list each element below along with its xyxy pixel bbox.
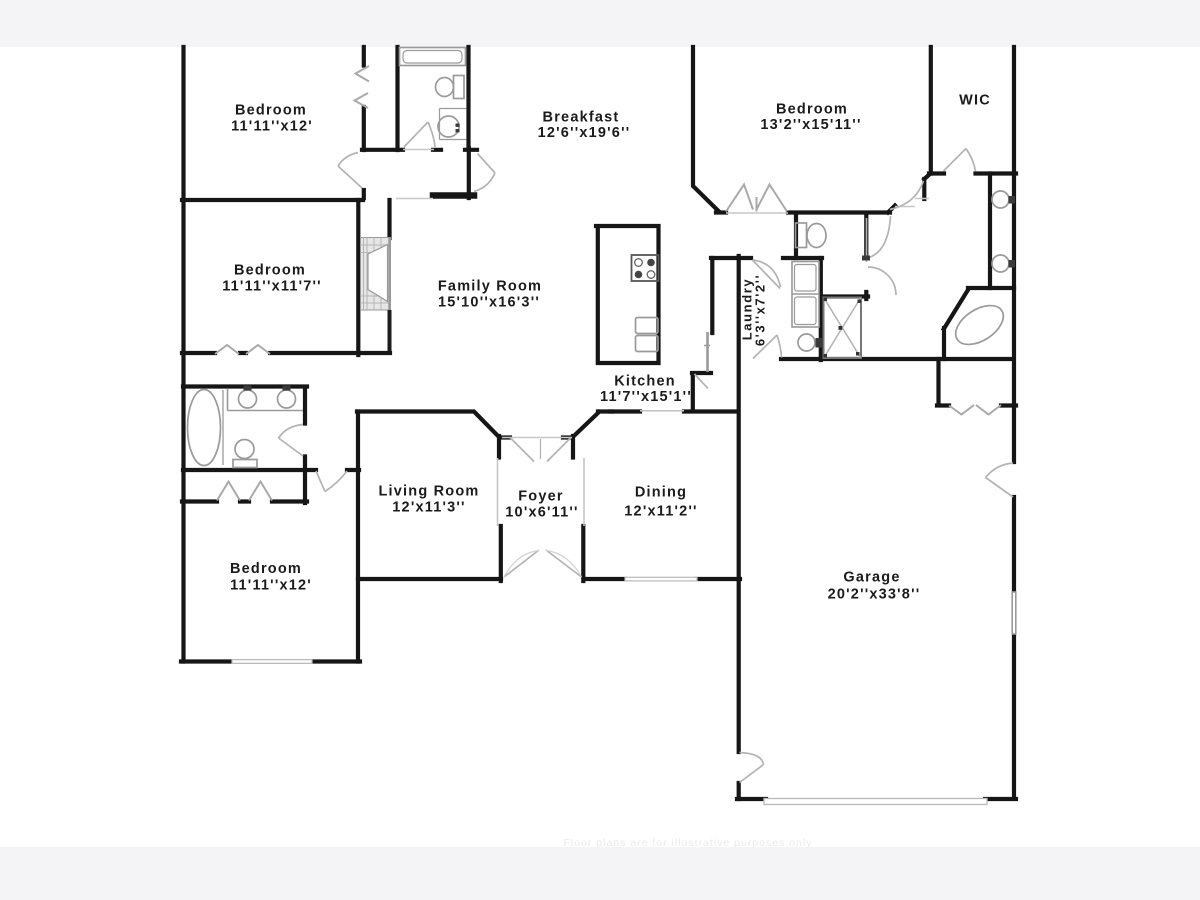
svg-text:Dining: Dining (635, 485, 687, 501)
svg-text:Bedroom: Bedroom (776, 102, 848, 118)
svg-text:12'x11'2'': 12'x11'2'' (624, 504, 697, 520)
svg-text:11'11''x12': 11'11''x12' (230, 578, 312, 594)
svg-text:6'3''x7'2'': 6'3''x7'2'' (753, 274, 768, 346)
svg-text:11'11''x11'7'': 11'11''x11'7'' (222, 279, 322, 295)
svg-text:10'x6'11'': 10'x6'11'' (505, 505, 578, 521)
svg-text:Kitchen: Kitchen (614, 374, 676, 390)
svg-text:Family Room: Family Room (438, 279, 542, 295)
svg-text:WIC: WIC (959, 93, 991, 109)
svg-text:15'10''x16'3'': 15'10''x16'3'' (438, 295, 540, 311)
svg-text:Breakfast: Breakfast (543, 110, 620, 126)
svg-text:Foyer: Foyer (518, 489, 564, 505)
svg-text:11'7''x15'1'': 11'7''x15'1'' (600, 389, 692, 405)
svg-text:Bedroom: Bedroom (230, 561, 302, 577)
svg-text:13'2''x15'11'': 13'2''x15'11'' (760, 117, 861, 133)
svg-text:12'x11'3'': 12'x11'3'' (392, 500, 465, 516)
svg-text:Living Room: Living Room (378, 484, 479, 500)
svg-text:11'11''x12': 11'11''x12' (231, 119, 313, 135)
svg-text:Floor plans are for illustrati: Floor plans are for illustrative purpose… (563, 837, 812, 849)
svg-text:Garage: Garage (843, 570, 900, 586)
svg-text:12'6''x19'6'': 12'6''x19'6'' (538, 125, 631, 141)
svg-text:Bedroom: Bedroom (234, 263, 306, 279)
svg-text:Bedroom: Bedroom (235, 103, 307, 119)
svg-text:20'2''x33'8'': 20'2''x33'8'' (828, 587, 921, 603)
